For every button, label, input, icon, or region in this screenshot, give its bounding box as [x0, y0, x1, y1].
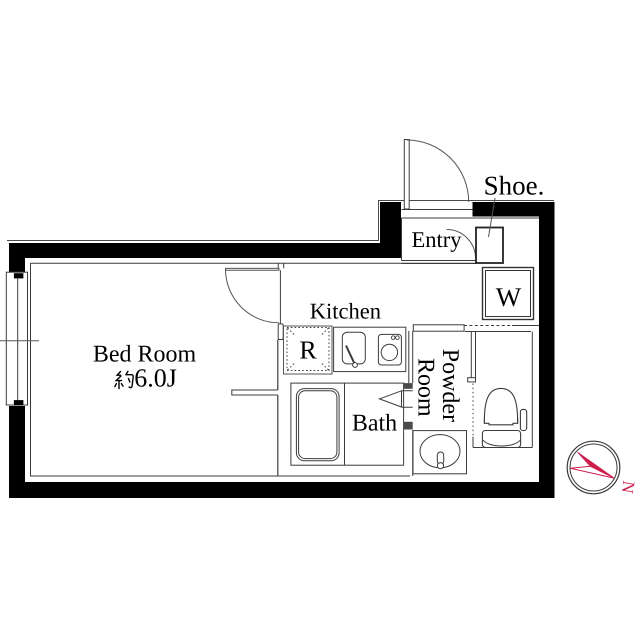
svg-text:W: W: [496, 282, 522, 312]
svg-text:Shoe.: Shoe.: [484, 171, 545, 201]
svg-text:Kitchen: Kitchen: [310, 299, 381, 324]
svg-text:Powder: Powder: [437, 349, 463, 422]
svg-text:Bath: Bath: [352, 411, 397, 437]
svg-text:Room: Room: [413, 358, 439, 417]
svg-text:R: R: [299, 336, 317, 365]
svg-text:Entry: Entry: [412, 227, 463, 252]
svg-text:6.0J: 6.0J: [134, 364, 177, 393]
